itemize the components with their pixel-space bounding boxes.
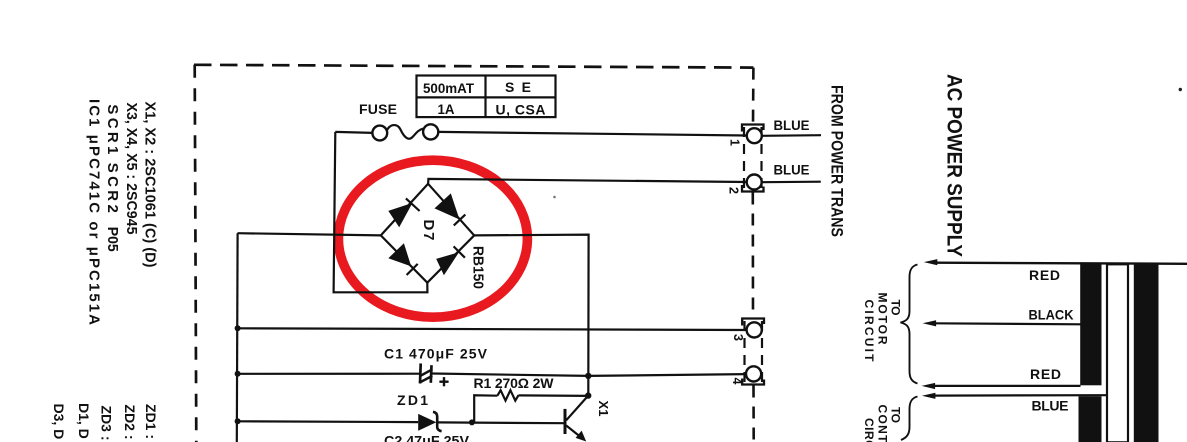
svg-text:S E: S E xyxy=(505,79,531,95)
svg-text:3: 3 xyxy=(731,334,745,341)
svg-text:FUSE: FUSE xyxy=(359,101,397,117)
svg-text:RED: RED xyxy=(1029,267,1060,283)
svg-text:R1 270Ω 2W: R1 270Ω 2W xyxy=(474,375,555,391)
svg-text:AC POWER SUPPLY: AC POWER SUPPLY xyxy=(943,74,966,257)
svg-text:1: 1 xyxy=(728,139,742,146)
svg-text:ZD1 :: ZD1 : xyxy=(143,404,159,439)
svg-text:ZD3 :: ZD3 : xyxy=(99,406,115,441)
svg-text:X1: X1 xyxy=(596,401,611,417)
svg-text:ZD2 :: ZD2 : xyxy=(122,405,138,440)
svg-text:C2 47μF 25V: C2 47μF 25V xyxy=(384,433,470,442)
svg-text:CIRCU: CIRCU xyxy=(862,418,876,442)
svg-text:TO: TO xyxy=(889,407,903,423)
svg-text:P05: P05 xyxy=(104,227,121,252)
svg-text:MOTOR: MOTOR xyxy=(876,293,890,345)
svg-text:BLUE: BLUE xyxy=(774,162,810,178)
svg-text:TO: TO xyxy=(889,300,903,316)
svg-text:X1, X2 : 2SC1061 (C) (D): X1, X2 : 2SC1061 (C) (D) xyxy=(142,102,159,268)
svg-text:RED: RED xyxy=(1030,366,1061,382)
svg-text:D7: D7 xyxy=(420,220,437,241)
svg-text:D3, D: D3, D xyxy=(51,404,67,440)
svg-text:D1, D: D1, D xyxy=(76,403,92,439)
svg-text:4: 4 xyxy=(730,378,744,385)
svg-text:BLUE: BLUE xyxy=(774,117,810,133)
svg-text:500mAT: 500mAT xyxy=(423,80,474,96)
svg-text:BLUE: BLUE xyxy=(1032,398,1069,414)
svg-text:C1 470μF 25V: C1 470μF 25V xyxy=(384,345,488,361)
svg-text:FROM POWER TRANS: FROM POWER TRANS xyxy=(828,85,847,237)
svg-text:BLACK: BLACK xyxy=(1029,307,1074,323)
svg-text:U, CSA: U, CSA xyxy=(496,101,546,117)
svg-text:1A: 1A xyxy=(438,101,455,117)
svg-text:RB150: RB150 xyxy=(470,246,487,289)
svg-text:ZD1: ZD1 xyxy=(397,392,428,408)
svg-text:2: 2 xyxy=(727,187,741,194)
svg-text:X3, X4, X5 : 2SC945: X3, X4, X5 : 2SC945 xyxy=(123,103,140,235)
svg-text:CONTR: CONTR xyxy=(876,405,890,442)
